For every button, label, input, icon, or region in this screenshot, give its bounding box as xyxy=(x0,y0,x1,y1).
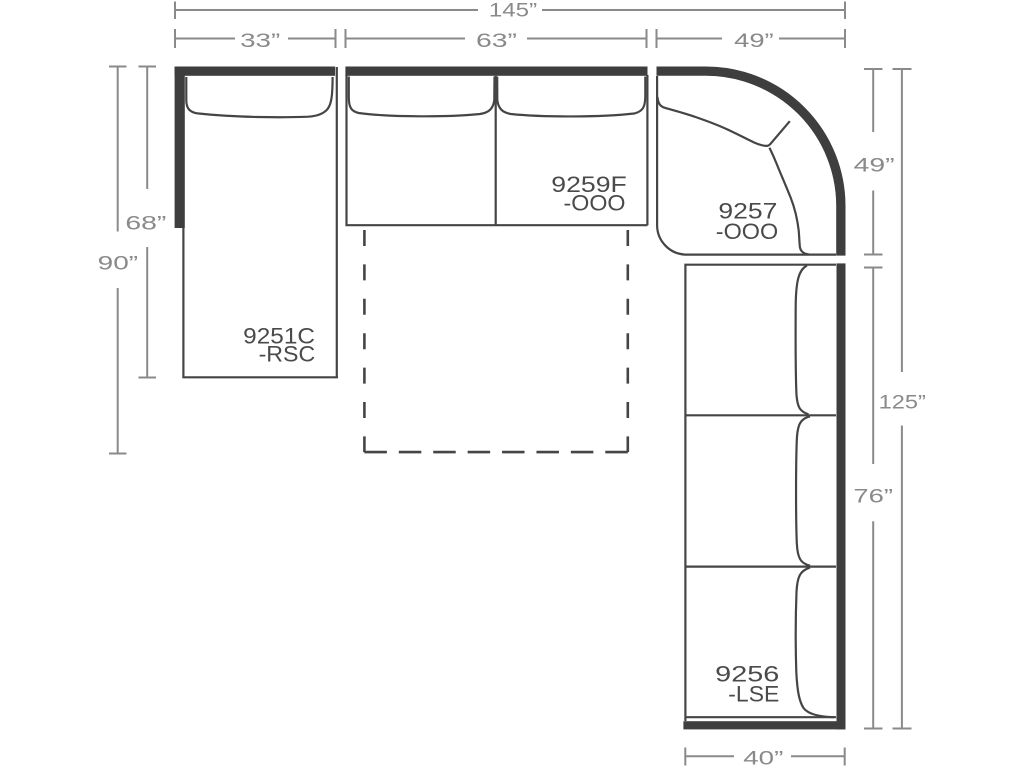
svg-text:40”: 40” xyxy=(743,748,783,768)
svg-text:-OOO: -OOO xyxy=(564,191,626,216)
svg-text:90”: 90” xyxy=(98,254,138,275)
svg-text:-RSC: -RSC xyxy=(259,341,316,366)
svg-text:63”: 63” xyxy=(476,31,517,52)
svg-text:145”: 145” xyxy=(489,1,537,22)
svg-text:49”: 49” xyxy=(854,156,895,177)
svg-text:49”: 49” xyxy=(734,31,774,52)
svg-text:76”: 76” xyxy=(853,486,893,507)
svg-text:68”: 68” xyxy=(125,214,166,235)
svg-text:-LSE: -LSE xyxy=(728,682,779,707)
svg-text:-OOO: -OOO xyxy=(716,219,778,244)
svg-text:125”: 125” xyxy=(879,393,926,414)
svg-text:33”: 33” xyxy=(240,31,280,52)
